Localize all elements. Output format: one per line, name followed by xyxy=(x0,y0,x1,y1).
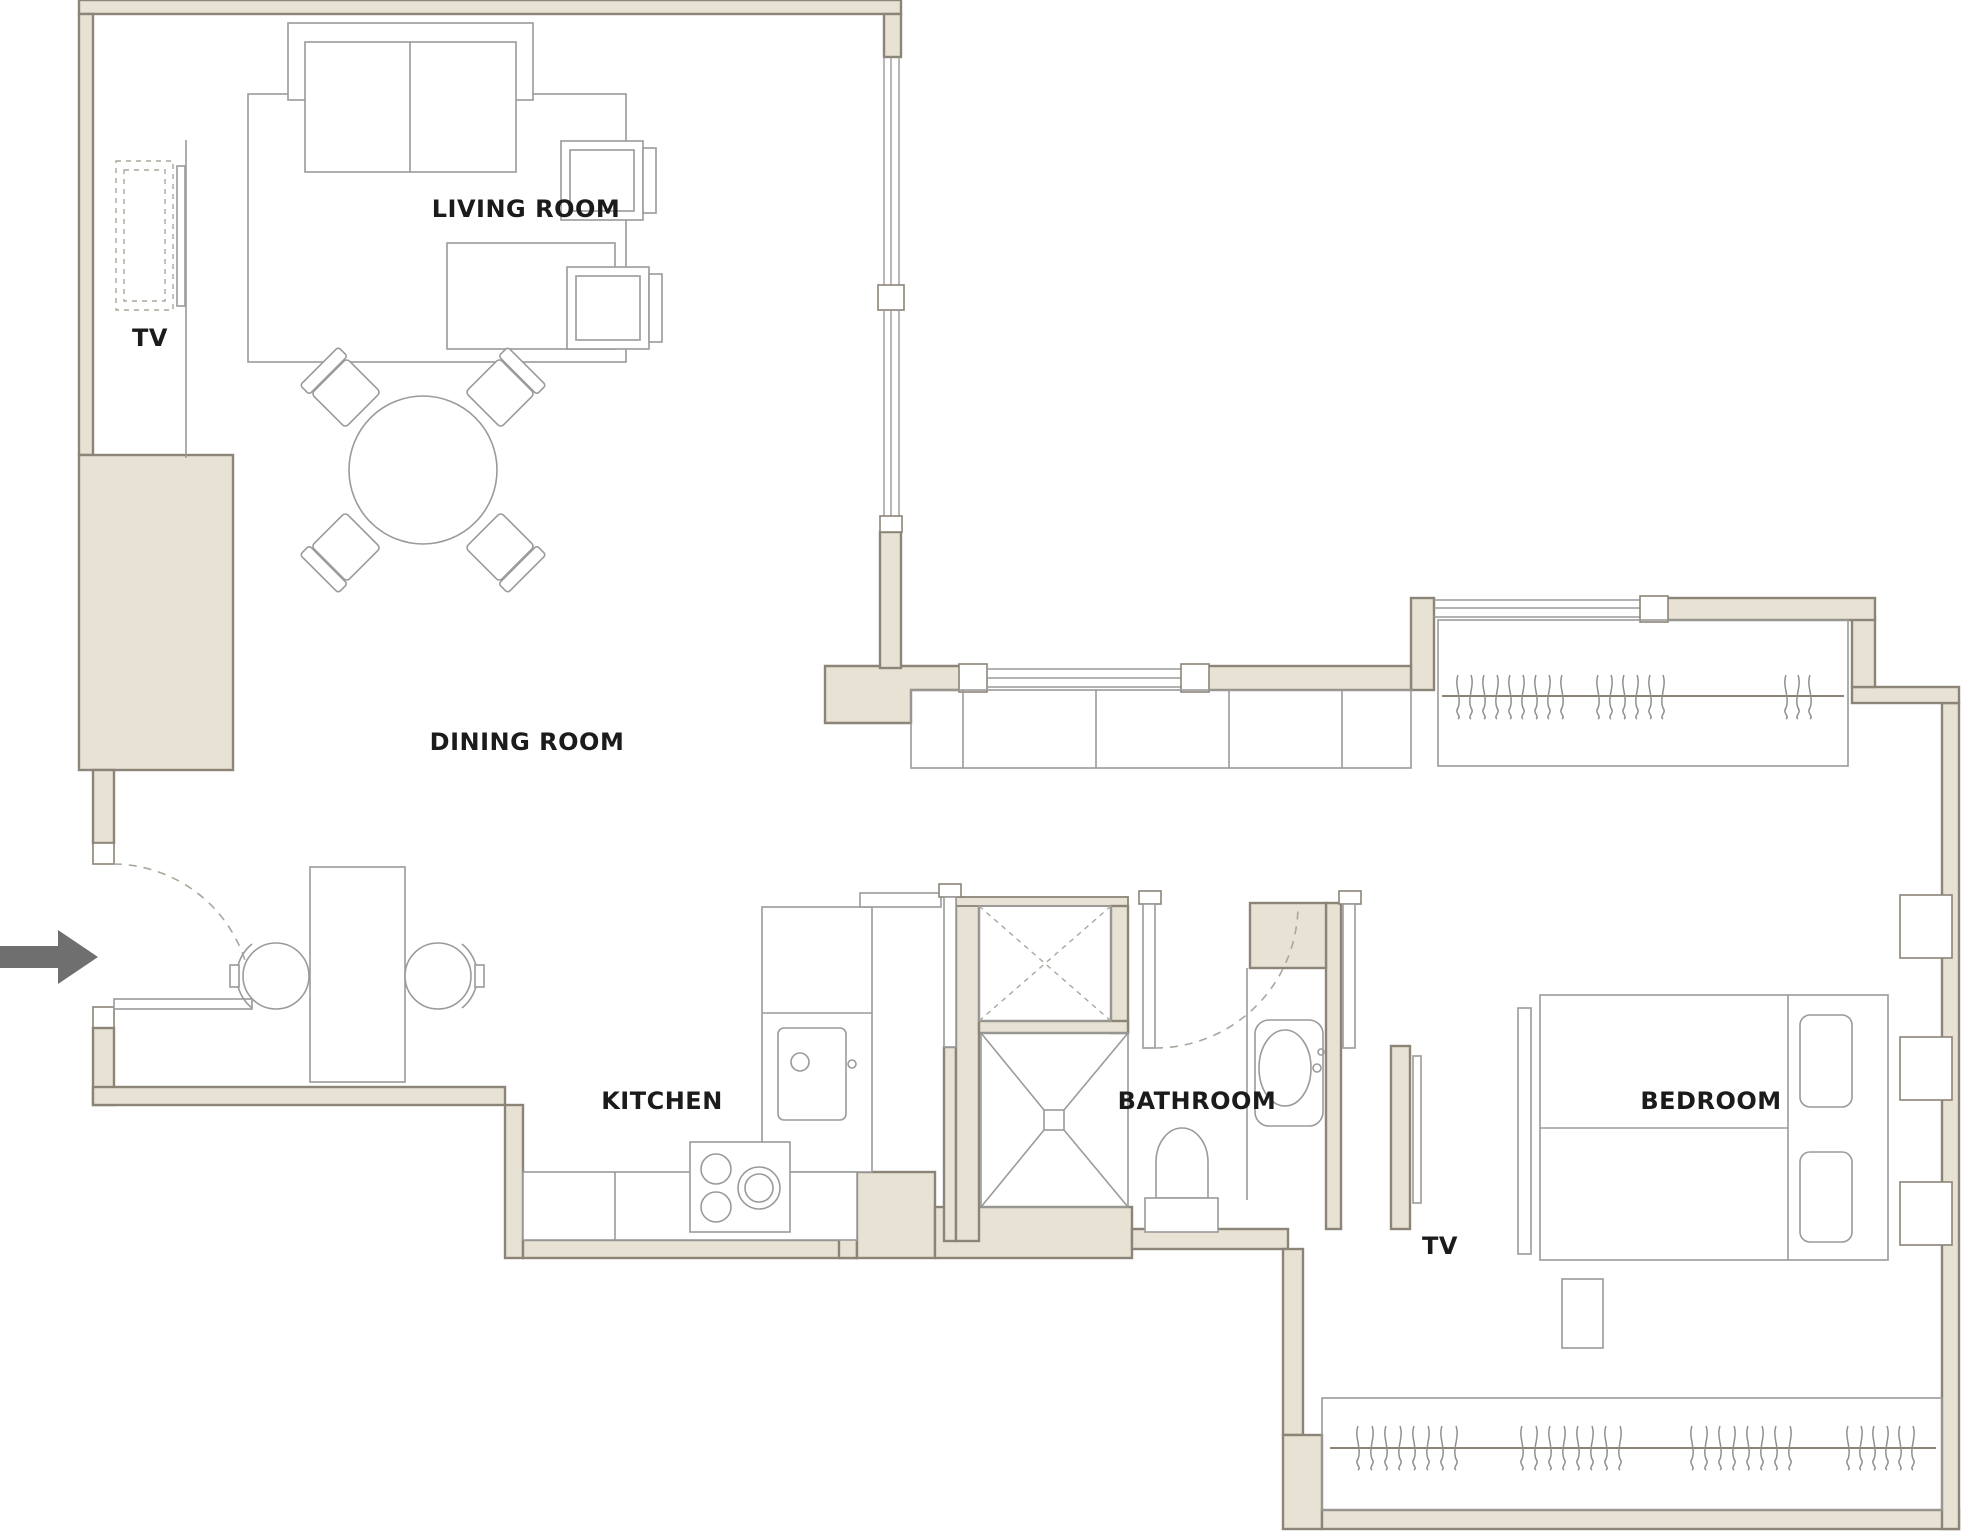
wall-mid-step xyxy=(1411,598,1434,690)
wall-core-left-lower xyxy=(944,1047,956,1241)
wall-bottom-right xyxy=(1322,1510,1959,1529)
wall-shaft-right xyxy=(1111,906,1128,1033)
label-dining-room: DINING ROOM xyxy=(430,728,625,756)
wall-core-left xyxy=(956,905,979,1241)
kitchen-sink xyxy=(778,1028,846,1120)
label-tv-bedroom: TV xyxy=(1422,1232,1458,1260)
wall-living-right-lower xyxy=(880,532,901,668)
elevator-shaft xyxy=(979,906,1111,1021)
label-living-room: LIVING ROOM xyxy=(432,195,621,223)
wall-niche xyxy=(1900,895,1952,958)
kitchen xyxy=(230,867,961,1240)
pillow xyxy=(1800,1152,1852,1242)
label-bathroom: BATHROOM xyxy=(1118,1087,1277,1115)
stool xyxy=(1562,1279,1603,1348)
bathroom-door-leaf xyxy=(1143,904,1155,1048)
bed-bench xyxy=(1518,1008,1531,1254)
bedroom xyxy=(1339,891,1952,1348)
bathroom-door-hinge xyxy=(1139,891,1161,904)
window-frame xyxy=(1181,664,1209,692)
entry-door-leaf xyxy=(114,999,252,1009)
door-jamb xyxy=(93,843,114,864)
label-kitchen: KITCHEN xyxy=(601,1087,723,1115)
windows xyxy=(878,57,1668,692)
wall-bathroom-right xyxy=(1326,903,1341,1229)
wardrobe-top xyxy=(1438,620,1848,766)
dining-chair xyxy=(464,511,546,593)
wall-niche xyxy=(1900,1037,1952,1100)
wall-left-block xyxy=(79,455,233,770)
dining-chair xyxy=(300,347,382,429)
wall-corridor-top xyxy=(1206,666,1411,690)
wardrobe-bottom xyxy=(1322,1398,1942,1510)
wall-bottom-left xyxy=(93,1087,505,1105)
tv-panel xyxy=(1413,1056,1421,1203)
wall-tv-stub xyxy=(1391,1046,1410,1229)
label-tv-living: TV xyxy=(132,324,168,352)
wall-kitchen-bottom xyxy=(523,1240,857,1258)
window-frame xyxy=(1640,596,1668,622)
window-frame xyxy=(959,664,987,692)
wall-shaft-divider xyxy=(979,1021,1128,1033)
service-core xyxy=(979,906,1128,1207)
wall-bedroom-left xyxy=(1283,1249,1303,1435)
wall-niche xyxy=(1900,1182,1952,1245)
wall-closet-corner xyxy=(1283,1435,1322,1529)
shower xyxy=(981,1033,1128,1207)
tv-cabinet xyxy=(116,140,186,458)
corridor-window xyxy=(959,664,1209,692)
kitchen-door-leaf xyxy=(944,897,956,1047)
wall-step-down xyxy=(505,1105,523,1258)
floor-plan-canvas: LIVING ROOM TV DINING ROOM KITCHEN BATHR… xyxy=(0,0,1972,1536)
bedroom-door-hinge xyxy=(1339,891,1361,904)
entry xyxy=(0,864,252,1009)
exterior-walls xyxy=(79,0,1959,1529)
label-bedroom: BEDROOM xyxy=(1640,1087,1781,1115)
closet-row xyxy=(911,690,1411,768)
kitchen-table xyxy=(310,867,405,1082)
wall-topright-step xyxy=(1852,617,1875,687)
wall-kitchen-corner xyxy=(857,1172,935,1258)
entry-arrow-icon xyxy=(0,930,98,984)
wall-living-right-stub xyxy=(884,14,901,57)
stove xyxy=(690,1142,790,1232)
kitchen-wall-opening xyxy=(860,893,941,907)
wall-right xyxy=(1942,703,1959,1529)
kitchen-chair xyxy=(405,943,484,1009)
wall-left-strip xyxy=(93,770,114,843)
kitchen-door-hinge xyxy=(939,884,961,897)
bed xyxy=(1540,995,1888,1260)
door-jamb xyxy=(93,1007,114,1028)
bedroom-top-window xyxy=(1434,596,1668,622)
bedroom-door-leaf xyxy=(1343,904,1355,1048)
wall-core-top xyxy=(956,897,1128,906)
dining-room xyxy=(300,347,546,593)
tv-panel xyxy=(177,166,185,306)
window-mullion xyxy=(878,285,904,310)
dining-chair xyxy=(464,347,546,429)
kitchen-counter-right xyxy=(762,907,872,1172)
shower-drain xyxy=(1044,1110,1064,1130)
sofa xyxy=(288,23,533,172)
toilet xyxy=(1145,1128,1218,1232)
living-room-window xyxy=(878,57,904,532)
pillow xyxy=(1800,1015,1852,1107)
dining-table xyxy=(349,396,497,544)
wall-topright xyxy=(1666,598,1875,620)
living-room xyxy=(116,23,662,458)
wall-left-upper xyxy=(79,14,93,455)
corridor-closets xyxy=(911,690,1411,768)
floor-plan: LIVING ROOM TV DINING ROOM KITCHEN BATHR… xyxy=(0,0,1972,1536)
armchair xyxy=(567,267,662,349)
dining-chair xyxy=(300,511,382,593)
wall-top xyxy=(79,0,901,14)
window-frame xyxy=(880,516,902,532)
wall-corner-block xyxy=(825,666,961,723)
wall-topright-jut xyxy=(1852,687,1959,703)
